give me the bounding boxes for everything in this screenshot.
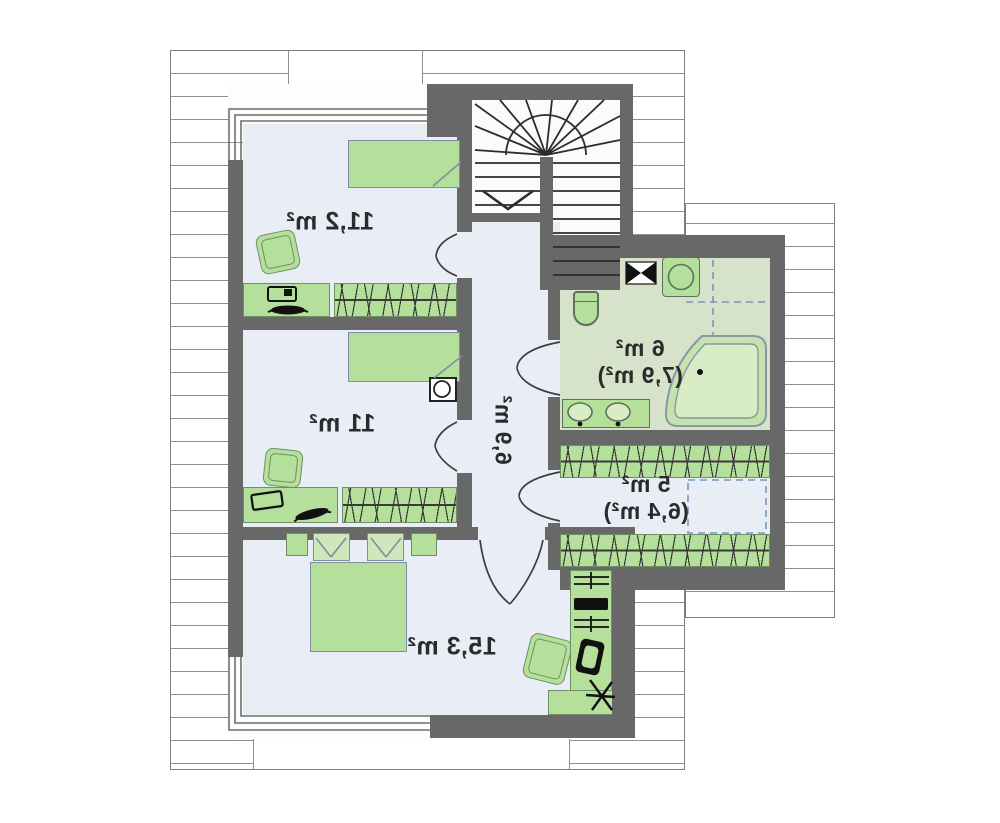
desk-icon	[243, 487, 338, 523]
wall	[228, 317, 472, 330]
desk-icon	[243, 283, 330, 317]
double-bed-icon	[310, 562, 407, 652]
roof-blank-bottom	[253, 739, 570, 769]
desk-icon	[548, 690, 612, 715]
floor-plan: 11,2 m² 11 m² 15,3 m² 6 m² (7,9 m²) 5 m²…	[0, 0, 1000, 823]
pillow-icon	[313, 533, 350, 561]
sink-counter-icon	[562, 399, 650, 428]
room-label-wardrobe: 5 m² (6,4 m²)	[603, 471, 689, 525]
wall	[228, 527, 478, 540]
wall	[548, 290, 560, 340]
water-heater-icon	[662, 257, 700, 297]
wall	[457, 473, 472, 527]
wardrobe-rail-icon	[560, 534, 770, 567]
room-label-hall: 6,9 m²	[490, 395, 517, 464]
wall	[427, 84, 472, 137]
wall	[770, 235, 785, 590]
wall	[430, 715, 635, 738]
washbasin-icon	[429, 377, 457, 402]
room-label-11-2: 11,2 m²	[286, 208, 374, 237]
wall	[620, 235, 770, 258]
wall	[620, 84, 633, 235]
wall	[548, 397, 560, 470]
wardrobe-area-secondary: (6,4 m²)	[603, 498, 689, 525]
wall	[228, 160, 243, 657]
bathroom-area-secondary: (7,9 m²)	[597, 362, 683, 389]
room-label-bathroom: 6 m² (7,9 m²)	[597, 335, 683, 389]
toilet-icon	[573, 291, 599, 326]
wardrobe-area: 5 m²	[603, 471, 689, 498]
wall	[472, 213, 540, 222]
nightstand-icon	[286, 533, 308, 556]
wall	[560, 430, 770, 445]
wall	[540, 235, 620, 290]
bed-icon	[348, 140, 460, 188]
bathroom-area: 6 m²	[597, 335, 683, 362]
wardrobe-rail-icon	[342, 487, 457, 523]
wardrobe-rail-icon	[334, 283, 457, 317]
bed-icon	[348, 332, 460, 382]
room-label-15-3: 15,3 m²	[407, 633, 497, 662]
room-label-11: 11 m²	[309, 410, 375, 439]
building-backing-top-left	[228, 84, 427, 126]
pillow-icon	[367, 533, 404, 561]
pouf-icon	[262, 447, 304, 489]
nightstand-icon	[411, 533, 437, 556]
roof-blank-top	[288, 51, 423, 84]
